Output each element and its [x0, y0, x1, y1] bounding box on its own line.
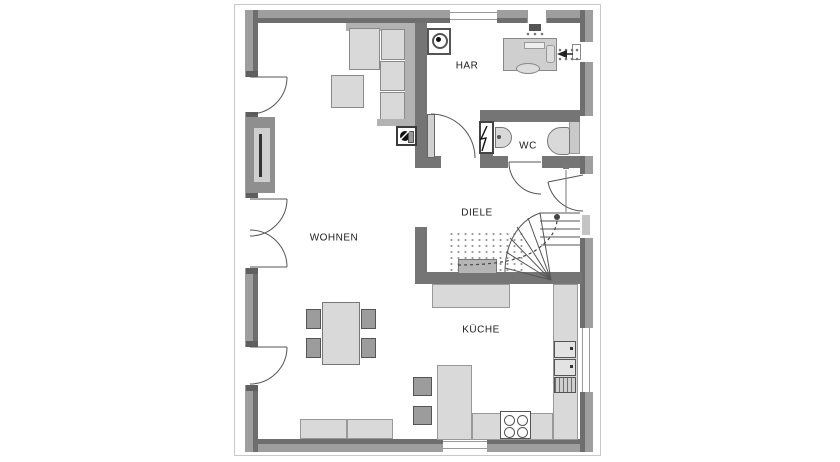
wall-wc-top: [480, 110, 580, 122]
duct-niche: [527, 10, 547, 23]
sideboard: [300, 419, 347, 439]
washing-machine-dot: [436, 37, 441, 42]
dining-chair: [306, 338, 321, 358]
room-label-hall: DIELE: [461, 208, 492, 219]
room-label-utility: HAR: [456, 61, 479, 72]
door-jamb: [246, 71, 258, 77]
dining-table: [322, 302, 360, 365]
wc-window: [580, 116, 593, 156]
sofa-chaise: [349, 28, 380, 70]
burner: [517, 415, 528, 426]
coffee-table: [331, 75, 364, 108]
washing-machine: [427, 28, 451, 55]
kitchen-counter-top: [432, 284, 510, 308]
kitchen-peninsula: [437, 365, 472, 440]
microwave: [554, 359, 576, 376]
wood-stove: [396, 126, 417, 146]
dining-chair: [306, 309, 321, 329]
toilet: [547, 127, 570, 155]
sofa-seat: [380, 61, 405, 91]
burner: [504, 415, 515, 426]
oven: [554, 341, 576, 358]
wall-wc-bottom-right: [542, 156, 580, 168]
burner: [504, 427, 515, 438]
sideboard: [347, 419, 393, 439]
sofa-seat: [380, 92, 405, 121]
kitchen-window-bottom: [443, 439, 487, 452]
wall-vent-opening: [580, 42, 593, 62]
terrace-door-opening: [245, 77, 258, 112]
sofa-seat: [381, 29, 405, 60]
microwave-knob: [570, 365, 573, 368]
washbasin-tap: [497, 135, 501, 139]
room-label-wc: WC: [519, 141, 537, 152]
duct-mark: [529, 24, 541, 31]
sofa-armrest: [377, 119, 415, 126]
wall-wc-bottom-left: [480, 156, 508, 168]
heat-pump-unit: [546, 45, 555, 63]
utility-window: [450, 10, 497, 23]
french-door-opening: [245, 198, 258, 268]
room-label-kitchen: KÜCHE: [462, 325, 500, 336]
dining-chair: [361, 338, 376, 358]
door-jamb: [246, 341, 258, 347]
dining-chair: [361, 309, 376, 329]
kitchen-window-right: [580, 328, 593, 392]
stove-door: [408, 131, 414, 143]
floor-plan: WOHNEN DIELE HAR WC KÜCHE: [0, 0, 840, 462]
wall-hall-kitchen-vertical: [415, 227, 427, 274]
wall-stair-kitchen: [415, 272, 582, 284]
understair-storage: [458, 259, 497, 274]
door-jamb: [246, 385, 258, 391]
exterior-wall-bottom: [245, 439, 593, 452]
electrical-panel: [479, 121, 494, 154]
sofa-back-right: [405, 23, 415, 124]
sidelight-glazing: [582, 215, 590, 235]
cooktop: [500, 411, 531, 439]
burner: [517, 427, 528, 438]
oven-knob: [570, 347, 573, 350]
dishwasher: [554, 377, 576, 393]
tv-screen: [259, 134, 262, 177]
front-door-opening: [580, 174, 593, 212]
wall-vent-box: [572, 44, 581, 60]
heat-pump-vent: [524, 42, 545, 49]
heat-pump-boiler: [516, 63, 540, 74]
utility-door-leaf: [427, 114, 435, 158]
room-label-living: WOHNEN: [310, 233, 359, 244]
door-jamb: [246, 268, 258, 274]
tv-sideboard-panel: [254, 128, 270, 182]
garden-door-opening: [245, 347, 258, 385]
wc-window-sill: [569, 118, 580, 154]
bar-stool: [413, 377, 432, 396]
bar-stool: [413, 406, 432, 425]
